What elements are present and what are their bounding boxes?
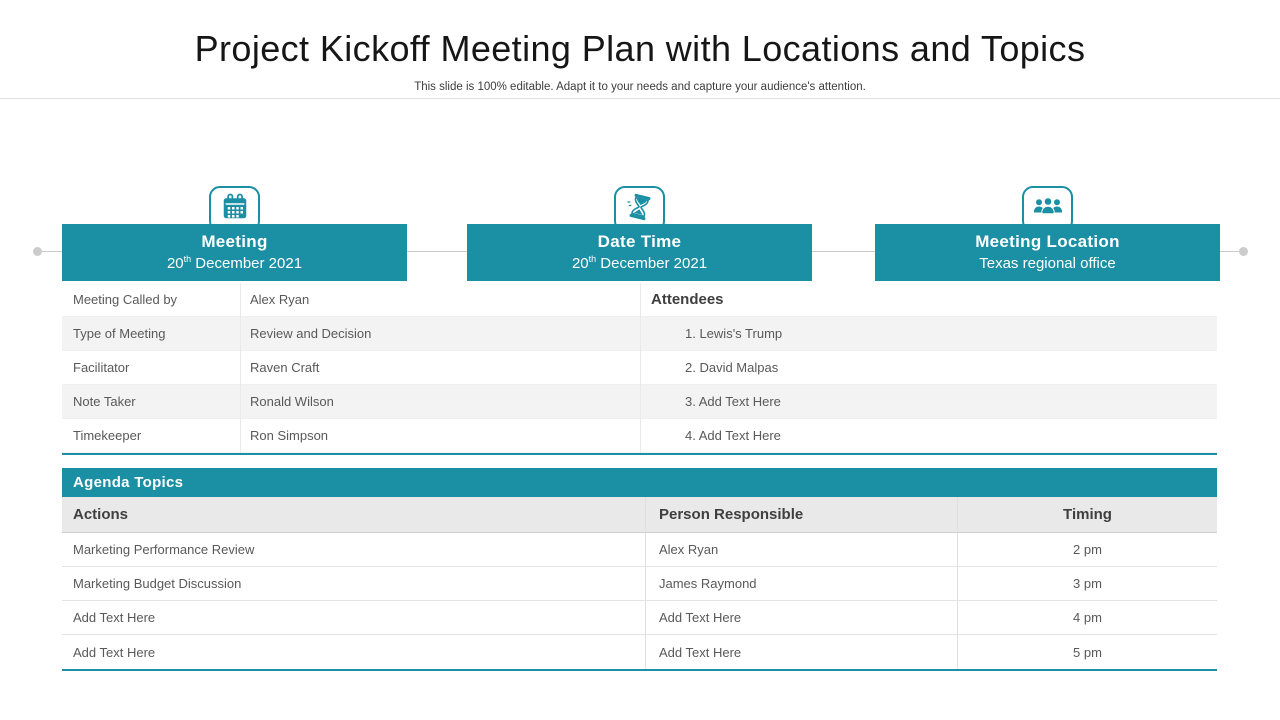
person-cell: Add Text Here	[645, 601, 957, 634]
action-cell: Add Text Here	[62, 645, 645, 660]
column-header-timing: Timing	[957, 497, 1217, 532]
header-divider-line	[0, 98, 1280, 99]
attendee-item: 4. Add Text Here	[640, 428, 1217, 443]
table-row: Marketing Performance Review Alex Ryan 2…	[62, 533, 1217, 567]
slide: Project Kickoff Meeting Plan with Locati…	[0, 0, 1280, 720]
person-cell: James Raymond	[645, 567, 957, 600]
page-subtitle: This slide is 100% editable. Adapt it to…	[0, 81, 1280, 93]
card-meeting: Meeting 20th December 2021	[62, 224, 407, 281]
card-date-time: Date Time 20th December 2021	[467, 224, 812, 281]
attendees-header: Attendees	[640, 291, 1217, 308]
detail-value: Ronald Wilson	[240, 394, 640, 409]
detail-label: Facilitator	[62, 360, 240, 375]
timing-cell: 5 pm	[957, 635, 1217, 669]
action-cell: Marketing Performance Review	[62, 542, 645, 557]
table-row: Add Text Here Add Text Here 4 pm	[62, 601, 1217, 635]
timing-cell: 2 pm	[957, 533, 1217, 566]
table-row: Marketing Budget Discussion James Raymon…	[62, 567, 1217, 601]
agenda-table: Actions Person Responsible Timing Market…	[62, 497, 1217, 671]
person-cell: Add Text Here	[645, 635, 957, 669]
column-header-person: Person Responsible	[645, 497, 957, 532]
detail-label: Meeting Called by	[62, 292, 240, 307]
timing-cell: 4 pm	[957, 601, 1217, 634]
connector-dot-right	[1239, 247, 1248, 256]
card-title: Meeting Location	[875, 232, 1220, 252]
column-divider	[640, 283, 641, 453]
detail-label: Timekeeper	[62, 428, 240, 443]
action-cell: Marketing Budget Discussion	[62, 576, 645, 591]
column-divider	[240, 283, 241, 453]
timing-cell: 3 pm	[957, 567, 1217, 600]
detail-value: Raven Craft	[240, 360, 640, 375]
card-meeting-location: Meeting Location Texas regional office	[875, 224, 1220, 281]
card-title: Meeting	[62, 232, 407, 252]
card-subtitle: Texas regional office	[875, 254, 1220, 272]
detail-label: Note Taker	[62, 394, 240, 409]
meeting-details-table: Meeting Called by Alex Ryan Attendees Ty…	[62, 283, 1217, 455]
card-title: Date Time	[467, 232, 812, 252]
card-subtitle: 20th December 2021	[467, 254, 812, 272]
column-header-actions: Actions	[62, 506, 645, 523]
attendee-item: 2. David Malpas	[640, 360, 1217, 375]
action-cell: Add Text Here	[62, 610, 645, 625]
connector-dot-left	[33, 247, 42, 256]
detail-value: Review and Decision	[240, 326, 640, 341]
card-subtitle: 20th December 2021	[62, 254, 407, 272]
detail-label: Type of Meeting	[62, 326, 240, 341]
attendee-item: 3. Add Text Here	[640, 394, 1217, 409]
detail-value: Alex Ryan	[240, 292, 640, 307]
table-row: Add Text Here Add Text Here 5 pm	[62, 635, 1217, 669]
person-cell: Alex Ryan	[645, 533, 957, 566]
agenda-topics-header: Agenda Topics	[62, 468, 1217, 497]
attendee-item: 1. Lewis's Trump	[640, 326, 1217, 341]
page-title: Project Kickoff Meeting Plan with Locati…	[0, 28, 1280, 70]
detail-value: Ron Simpson	[240, 428, 640, 443]
agenda-header-row: Actions Person Responsible Timing	[62, 497, 1217, 533]
